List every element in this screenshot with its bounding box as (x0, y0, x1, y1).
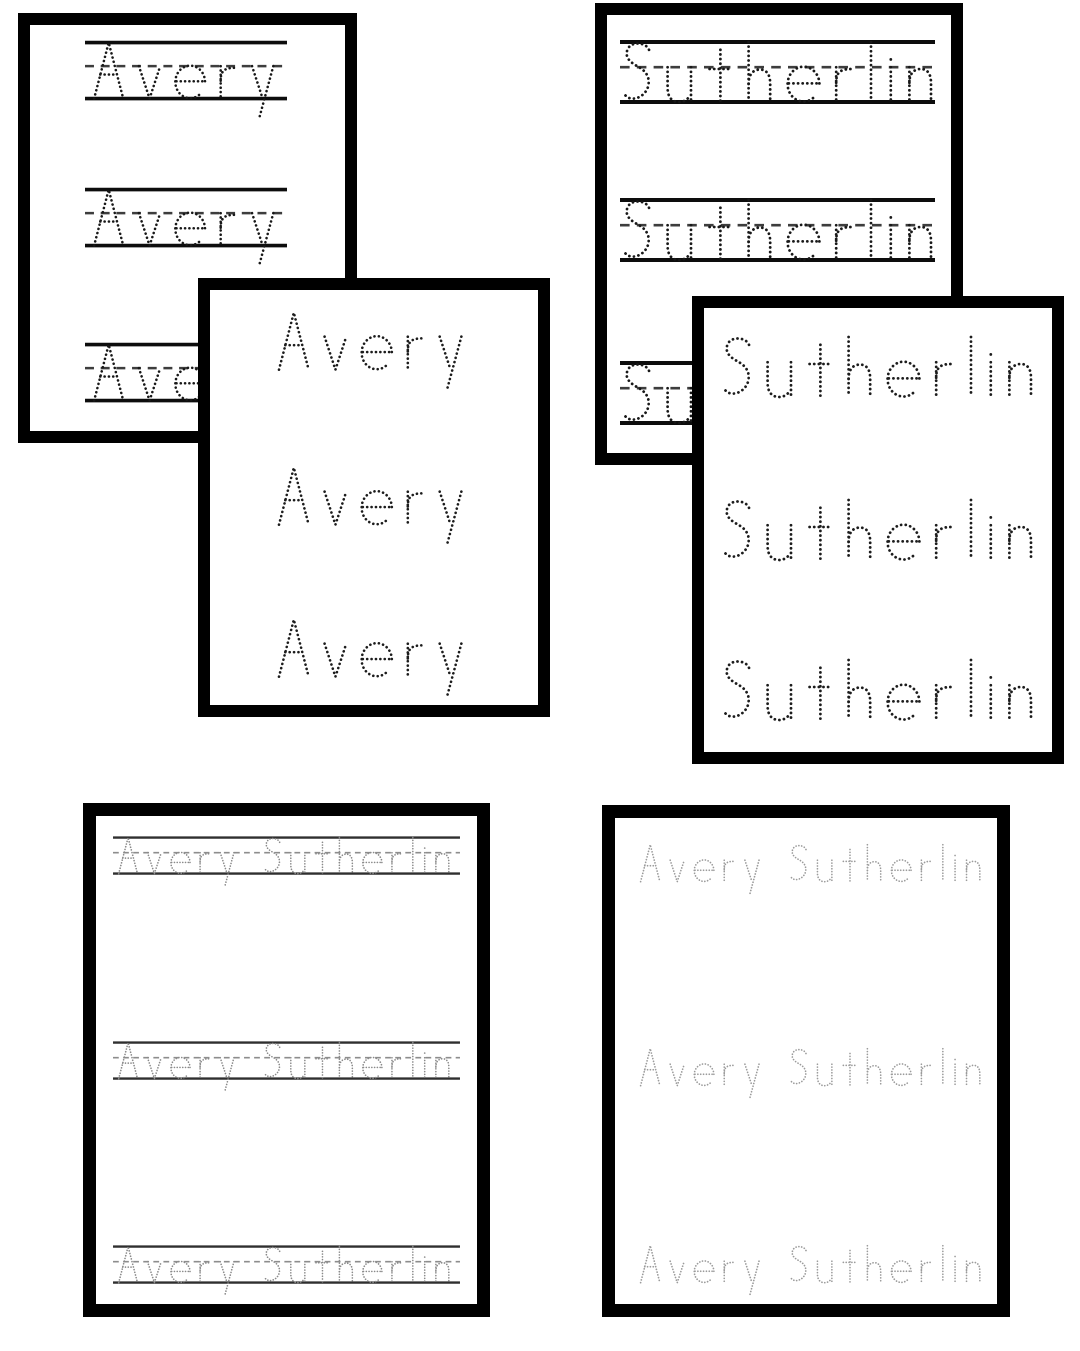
trace-letter-r (408, 492, 423, 525)
trace-letter-v (139, 214, 160, 246)
trace-letter-t (843, 850, 856, 882)
trace-letter-e (788, 225, 820, 260)
trace-letter-e (171, 853, 190, 874)
dotted-trace-word (279, 313, 461, 392)
trace-letter-e (888, 685, 920, 720)
trace-letter-e (694, 1064, 714, 1085)
trace-letter-y (220, 1058, 234, 1093)
trace-letter-y (745, 1262, 759, 1298)
tracing-row-plain-1 (638, 841, 983, 900)
trace-letter-u (768, 685, 791, 720)
trace-letter-u (818, 1065, 832, 1086)
trace-letter-A (119, 1043, 138, 1079)
trace-letter-h (339, 838, 352, 874)
worksheet-page-avery-plain (198, 278, 550, 717)
handwriting-guides (113, 838, 460, 874)
trace-letter-y (440, 337, 462, 392)
tracing-row-lined-1 (113, 834, 460, 892)
worksheet-paper (96, 816, 477, 1304)
trace-letter-S (724, 338, 749, 393)
trace-letter-n (436, 1262, 449, 1283)
trace-letter-y (440, 492, 462, 547)
trace-letter-t (843, 1054, 856, 1086)
trace-letter-t (316, 1252, 329, 1283)
trace-letter-y (252, 67, 273, 121)
trace-letter-t (810, 345, 832, 397)
trace-letter-n (909, 225, 931, 260)
worksheet-paper (210, 290, 538, 705)
trace-letter-v (148, 1058, 162, 1079)
trace-letter-e (175, 213, 205, 245)
trace-letter-e (171, 1262, 190, 1283)
trace-letter-A (119, 1247, 138, 1283)
trace-letter-S (265, 1248, 280, 1281)
trace-letter-u (291, 853, 305, 874)
dotted-trace-word (641, 1049, 980, 1100)
trace-letter-n (1009, 525, 1031, 560)
trace-letter-r (392, 853, 402, 874)
trace-letter-S (624, 43, 649, 98)
tracing-row-lined-1 (85, 37, 287, 127)
trace-letter-S (791, 1050, 807, 1084)
trace-letter-v (139, 67, 160, 99)
trace-letter-h (749, 200, 771, 260)
trace-letter-h (339, 1247, 352, 1283)
trace-letter-r (724, 1262, 734, 1283)
trace-letter-y (745, 1065, 759, 1101)
tracing-row-plain-3 (275, 614, 465, 705)
trace-letter-e (892, 1064, 912, 1085)
trace-letter-e (362, 491, 392, 524)
dotted-trace-word (279, 620, 461, 699)
trace-letter-y (252, 214, 273, 268)
trace-letter-e (888, 525, 920, 560)
trace-letter-v (325, 492, 347, 525)
trace-letter-A (94, 43, 123, 99)
trace-letter-r (724, 1065, 734, 1086)
dotted-trace-word (94, 43, 273, 120)
trace-letter-n (967, 1065, 980, 1086)
trace-letter-n (967, 1262, 980, 1283)
trace-letter-A (119, 838, 138, 874)
trace-letter-v (148, 853, 162, 874)
tracing-row-plain-1 (275, 307, 465, 398)
trace-letter-v (148, 1262, 162, 1283)
trace-letter-u (668, 388, 691, 423)
trace-letter-v (670, 1065, 684, 1086)
trace-letter-e (888, 362, 920, 397)
trace-letter-S (724, 501, 749, 556)
trace-letter-n (1009, 362, 1031, 397)
trace-letter-y (220, 853, 234, 888)
trace-letter-A (94, 345, 123, 401)
dotted-trace-word (624, 42, 931, 102)
trace-letter-r (200, 1058, 210, 1079)
trace-letter-S (791, 846, 807, 880)
trace-letter-r (200, 1262, 210, 1283)
dotted-trace-word (279, 468, 461, 547)
tracing-row-lined-2 (113, 1039, 460, 1097)
trace-letter-r (408, 337, 423, 370)
trace-letter-h (339, 1043, 352, 1079)
trace-letter-u (768, 525, 791, 560)
trace-letter-y (440, 644, 462, 699)
trace-letter-e (363, 1262, 382, 1283)
trace-letter-e (363, 1058, 382, 1079)
worksheet-paper (704, 308, 1052, 752)
trace-letter-h (749, 42, 771, 102)
trace-letter-r (408, 644, 423, 677)
dotted-trace-word (724, 660, 1031, 720)
trace-letter-A (641, 1049, 660, 1086)
worksheet-page-avery-sutherlin-lined (83, 803, 490, 1317)
worksheet-page-sutherlin-plain (692, 296, 1064, 764)
trace-letter-t (316, 1048, 329, 1079)
trace-letter-n (436, 853, 449, 874)
trace-letter-h (849, 337, 871, 397)
trace-letter-h (868, 1246, 881, 1283)
trace-letter-A (279, 313, 309, 370)
trace-letter-r (922, 1065, 932, 1086)
trace-letter-A (641, 845, 660, 882)
trace-letter-v (139, 369, 160, 401)
dotted-trace-word (641, 1246, 980, 1297)
trace-letter-h (849, 500, 871, 560)
trace-letter-e (788, 67, 820, 102)
trace-letter-t (710, 208, 732, 260)
trace-letter-S (265, 839, 280, 872)
trace-letter-S (624, 364, 649, 419)
trace-letter-r (200, 853, 210, 874)
dotted-trace-word (724, 500, 1031, 560)
trace-letter-r (922, 1262, 932, 1283)
trace-letter-r (392, 1262, 402, 1283)
tracing-row-plain-2 (275, 462, 465, 553)
tracing-row-lined-2 (85, 184, 287, 274)
trace-letter-e (694, 860, 714, 881)
trace-letter-e (175, 66, 205, 98)
trace-letter-v (325, 337, 347, 370)
trace-letter-r (392, 1058, 402, 1079)
trace-letter-v (670, 861, 684, 882)
dotted-trace-word (119, 838, 449, 888)
dotted-trace-word (724, 337, 1031, 397)
trace-letter-e (694, 1261, 714, 1282)
trace-letter-v (325, 644, 347, 677)
trace-letter-e (892, 860, 912, 881)
trace-letter-u (291, 1058, 305, 1079)
trace-letter-S (624, 201, 649, 256)
trace-letter-A (94, 190, 123, 246)
trace-letter-t (710, 50, 732, 102)
trace-letter-r (936, 362, 952, 397)
trace-letter-u (818, 1262, 832, 1283)
trace-letter-S (791, 1247, 807, 1281)
trace-letter-r (936, 685, 952, 720)
trace-letter-r (936, 525, 952, 560)
tracing-row-plain-1 (719, 331, 1036, 427)
tracing-row-plain-3 (638, 1242, 983, 1301)
trace-letter-A (279, 620, 309, 677)
trace-letter-r (724, 861, 734, 882)
trace-letter-e (362, 336, 392, 369)
trace-letter-u (291, 1262, 305, 1283)
tracing-row-plain-2 (719, 494, 1036, 590)
trace-letter-t (316, 843, 329, 874)
handwriting-guides (113, 1043, 460, 1079)
trace-letter-n (967, 861, 980, 882)
tracing-row-lined-2 (620, 194, 935, 290)
trace-letter-u (668, 67, 691, 102)
trace-letter-v (670, 1262, 684, 1283)
tracing-row-lined-3 (113, 1243, 460, 1301)
trace-letter-r (836, 225, 852, 260)
trace-letter-r (221, 214, 236, 246)
trace-letter-e (892, 1261, 912, 1282)
trace-letter-n (909, 67, 931, 102)
handwriting-guides (113, 1247, 460, 1283)
trace-letter-u (768, 362, 791, 397)
worksheet-paper (615, 818, 997, 1304)
trace-letter-h (868, 1049, 881, 1086)
tracing-row-lined-1 (620, 36, 935, 132)
dotted-trace-word (94, 190, 273, 267)
dotted-trace-word (641, 845, 980, 896)
trace-letter-e (171, 1058, 190, 1079)
trace-letter-e (362, 643, 392, 676)
worksheet-product-sheet (0, 0, 1080, 1351)
trace-letter-y (220, 1262, 234, 1297)
trace-letter-r (836, 67, 852, 102)
trace-letter-y (745, 861, 759, 897)
tracing-row-plain-2 (638, 1045, 983, 1104)
trace-letter-h (849, 660, 871, 720)
dotted-trace-word (624, 200, 931, 260)
trace-letter-A (641, 1246, 660, 1283)
trace-letter-S (724, 661, 749, 716)
trace-letter-n (1009, 685, 1031, 720)
trace-letter-r (922, 861, 932, 882)
trace-letter-e (363, 853, 382, 874)
dotted-trace-word (119, 1247, 449, 1297)
trace-letter-r (221, 67, 236, 99)
trace-letter-h (868, 845, 881, 882)
worksheet-page-avery-sutherlin-plain (602, 805, 1010, 1317)
trace-letter-t (810, 508, 832, 560)
dotted-trace-word (119, 1043, 449, 1093)
tracing-row-plain-3 (719, 654, 1036, 750)
trace-letter-S (265, 1044, 280, 1077)
trace-letter-t (810, 668, 832, 720)
trace-letter-u (818, 861, 832, 882)
trace-letter-n (436, 1058, 449, 1079)
trace-letter-t (843, 1251, 856, 1283)
trace-letter-u (668, 225, 691, 260)
trace-letter-A (279, 468, 309, 525)
